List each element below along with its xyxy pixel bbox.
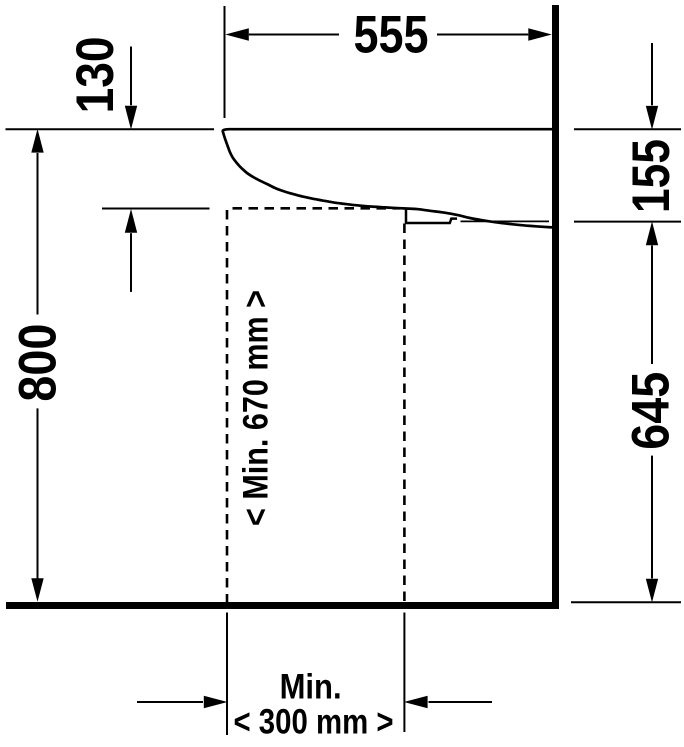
svg-text:130: 130 bbox=[66, 36, 125, 113]
svg-text:645: 645 bbox=[622, 372, 681, 450]
svg-text:Min.: Min. bbox=[280, 668, 342, 707]
svg-text:< Min. 670 mm >: < Min. 670 mm > bbox=[237, 290, 276, 526]
svg-text:< 300 mm >: < 300 mm > bbox=[234, 702, 394, 741]
svg-text:555: 555 bbox=[354, 5, 429, 64]
svg-text:155: 155 bbox=[622, 139, 681, 213]
svg-text:800: 800 bbox=[8, 324, 67, 402]
